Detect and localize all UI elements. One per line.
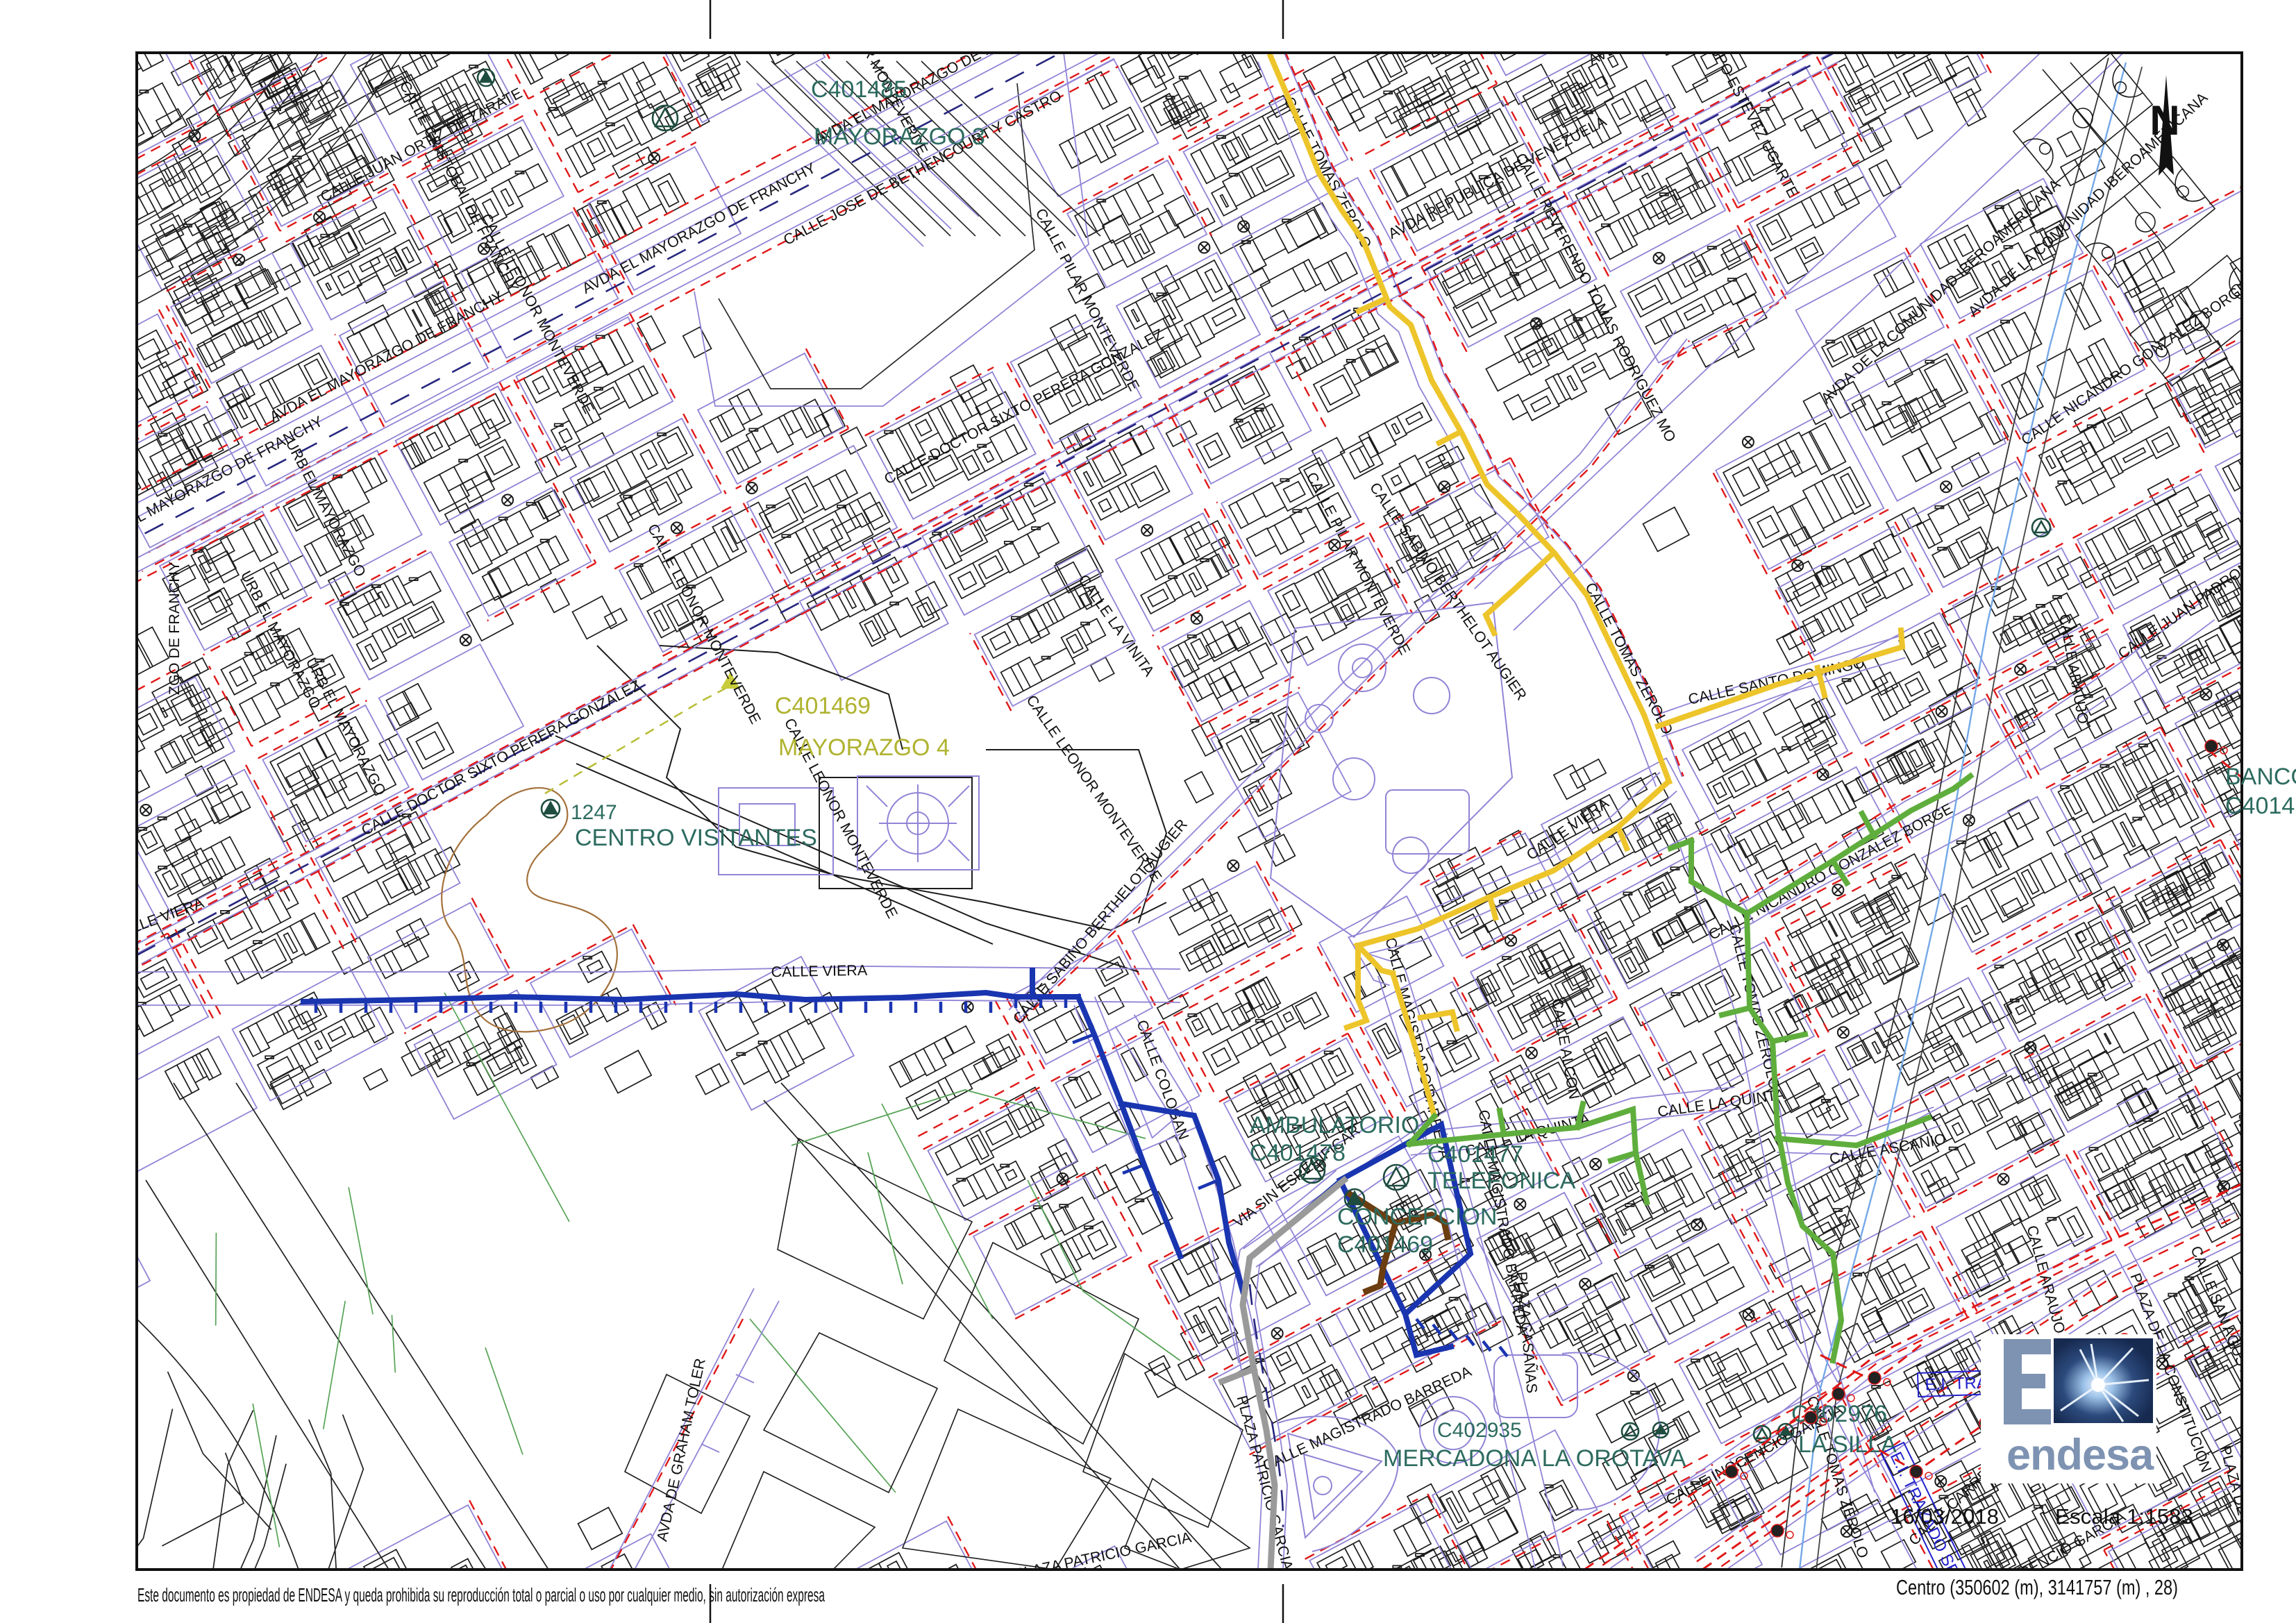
svg-text:Escala 1:1583: Escala 1:1583 bbox=[2055, 1504, 2193, 1529]
svg-text:1247: 1247 bbox=[571, 801, 617, 824]
svg-text:MERCADONA LA OROTAVA: MERCADONA LA OROTAVA bbox=[1383, 1445, 1686, 1472]
svg-text:C401479: C401479 bbox=[2225, 793, 2296, 819]
svg-text:Este documento es propiedad de: Este documento es propiedad de ENDESA y … bbox=[137, 1584, 825, 1606]
svg-text:C402935: C402935 bbox=[1437, 1419, 1522, 1442]
svg-text:C401485: C401485 bbox=[811, 76, 907, 103]
svg-text:endesa: endesa bbox=[2006, 1431, 2154, 1479]
svg-text:BANCO: BANCO bbox=[2225, 764, 2296, 790]
svg-text:16/03/2018: 16/03/2018 bbox=[1891, 1504, 1999, 1529]
svg-text:MAYORAZGO 4: MAYORAZGO 4 bbox=[778, 734, 950, 761]
svg-text:MAYORAZGO 3: MAYORAZGO 3 bbox=[814, 124, 985, 150]
svg-text:CONCEPCION: CONCEPCION bbox=[1337, 1204, 1497, 1230]
svg-text:C401478: C401478 bbox=[1250, 1140, 1346, 1166]
svg-text:CENTRO VISITANTES: CENTRO VISITANTES bbox=[575, 825, 817, 851]
svg-text:C401469: C401469 bbox=[1337, 1231, 1433, 1258]
svg-text:TELEFONICA: TELEFONICA bbox=[1427, 1168, 1576, 1194]
svg-text:C401469: C401469 bbox=[775, 693, 871, 719]
svg-text:C401477: C401477 bbox=[1427, 1141, 1523, 1168]
svg-text:AMBULATORIO: AMBULATORIO bbox=[1250, 1112, 1419, 1138]
svg-text:ZGO DE FRANCHY: ZGO DE FRANCHY bbox=[166, 562, 183, 695]
svg-text:Centro (350602 (m), 3141757 (m: Centro (350602 (m), 3141757 (m) , 28) bbox=[1896, 1575, 2178, 1599]
svg-text:CALLE VIERA: CALLE VIERA bbox=[771, 962, 868, 980]
